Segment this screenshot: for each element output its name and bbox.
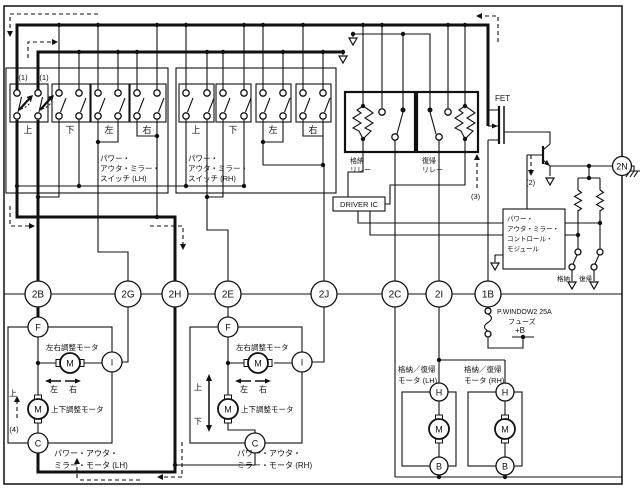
fuse-element <box>485 314 492 331</box>
motor-ud-rh-label: M <box>224 405 232 415</box>
storage-relay-label: 格納 <box>350 156 364 165</box>
ground-arrow-icon <box>590 282 598 289</box>
group-label-down: 下 <box>228 125 237 135</box>
terminal-b-lh-label: B <box>436 462 442 472</box>
lr-motor-name-rh: 左右調整モータ <box>236 342 289 352</box>
ud-motor-name-rh: 上下調整モータ <box>241 404 294 414</box>
transistor-symbol <box>543 144 550 166</box>
connector-2i-label: 2I <box>435 290 443 301</box>
connector-2j-label: 2J <box>319 290 330 301</box>
connector-2h-label: 2H <box>169 290 182 301</box>
ground-arrow-icon <box>546 178 554 185</box>
module-label: コントロール・ <box>507 235 553 243</box>
actuation-arrows <box>19 99 50 110</box>
mirror-motor-rh-name: パワー・アウタ・ <box>237 449 301 458</box>
motor-ud-lh-label: M <box>34 405 42 415</box>
connector-2e-label: 2E <box>222 290 235 301</box>
module-label: パワー・ <box>507 215 533 223</box>
manual-switch-storage-label: 格納 <box>557 274 570 283</box>
storage-relay-box <box>345 92 415 152</box>
left-label: 左 <box>50 384 58 394</box>
terminal-f-rh-label: F <box>225 323 231 333</box>
driver-ic-label: DRIVER IC <box>340 200 379 209</box>
fet-symbol <box>488 106 504 144</box>
transistor-emitter-arrow <box>544 160 550 166</box>
fuse-name: P.WINDOW2 25A <box>497 309 552 316</box>
lr-motor-name-lh: 左右調整モータ <box>46 342 99 352</box>
terminal-h-rh-label: H <box>502 388 509 398</box>
motion-arrows <box>45 374 271 432</box>
group-label-down: 下 <box>65 125 74 135</box>
note-2-label: (2) <box>526 178 536 187</box>
wiring-diagram-page: (1) (1) 上 下 左 右 上 下 左 右 パワー・ アウタ・ミラー・ スイ… <box>0 0 643 488</box>
arrowhead-right-icon <box>29 223 35 229</box>
terminal-f-lh-label: F <box>35 323 41 333</box>
arrowhead-left-icon <box>476 13 482 19</box>
flow-left-elbow <box>28 42 52 58</box>
connector-2c-label: 2C <box>389 290 402 301</box>
group-label-right: 右 <box>142 124 151 135</box>
down-label: 下 <box>194 417 202 426</box>
offpage-arrow-icon <box>349 38 357 45</box>
mirror-motor-rh-name: ミラー・モータ (RH) <box>237 461 312 470</box>
arrowhead-right-icon <box>52 39 58 45</box>
switch-box-rh-name: アウタ・ミラー・ <box>188 164 248 173</box>
fuse-type: フューズ <box>508 317 536 326</box>
group-label-up: 上 <box>191 125 200 135</box>
flow-top-left <box>10 14 98 30</box>
fet-body-arrow <box>492 124 498 129</box>
arrowhead-down-icon <box>528 170 534 176</box>
fold-motor-lh-name: モータ (LH) <box>398 376 438 385</box>
module-label: アウタ・ミラー・ <box>507 224 559 233</box>
arrowhead-left-icon <box>157 474 163 480</box>
mirror-circuit-diagram: (1) (1) 上 下 左 右 上 下 左 右 パワー・ アウタ・ミラー・ スイ… <box>0 0 643 488</box>
arrowhead-down-icon <box>7 31 13 37</box>
switch-box-rh-name: スイッチ (RH) <box>188 174 236 183</box>
terminal-i-rh-label: I <box>301 358 304 368</box>
note-4-label: (4) <box>9 425 19 434</box>
fold-motor-rh-m-label: M <box>501 425 509 435</box>
labels: (1) (1) 上 下 左 右 上 下 左 右 パワー・ アウタ・ミラー・ スイ… <box>9 73 628 472</box>
switch-box-rh-name: パワー・ <box>188 154 218 163</box>
resistor-right <box>597 190 604 211</box>
fet-label: FET <box>495 94 510 103</box>
connector-2n-label: 2N <box>616 162 628 172</box>
group-label-left: 左 <box>268 124 277 135</box>
arrowhead-down-icon <box>180 244 186 250</box>
storage-relay-label: リレー <box>350 167 371 174</box>
switch-box-lh-name: パワー・ <box>100 154 130 163</box>
group-label-right: 右 <box>308 124 317 135</box>
resistor-left <box>575 190 582 211</box>
terminal-i-lh-label: I <box>111 358 114 368</box>
storage-relay-coil <box>353 106 373 139</box>
up-label: 上 <box>194 383 202 392</box>
up-label: 上 <box>9 389 17 398</box>
driver-module-wires <box>358 132 634 281</box>
fuse-terminal: +B <box>515 326 525 335</box>
return-relay-label: リレー <box>422 167 443 174</box>
motor-lr-rh-label: M <box>254 359 262 369</box>
ground-arrow-icon <box>568 282 576 289</box>
manual-switch-return-label: 復帰 <box>579 274 593 283</box>
ground-arrow-icon <box>491 263 499 270</box>
mirror-motor-lh-name: ミラー・モータ (LH) <box>54 461 128 470</box>
offpage-triangles <box>339 38 598 289</box>
right-label: 右 <box>69 384 77 394</box>
fold-motor-rh-name: モータ (RH) <box>464 376 505 385</box>
ud-motor-name-lh: 上下調整モータ <box>51 404 104 414</box>
group-label-left: 左 <box>104 124 113 135</box>
terminal-h-lh-label: H <box>436 388 443 398</box>
right-label: 右 <box>259 384 267 394</box>
note-1-label: (1) <box>39 73 49 82</box>
note-3-label: (3) <box>471 192 481 201</box>
connector-2g-label: 2G <box>121 290 135 301</box>
note-1-label: (1) <box>18 73 28 82</box>
offpage-arrow-icon <box>339 56 347 63</box>
switch-box-lh-name: アウタ・ミラー・ <box>100 164 160 173</box>
group-label-up: 上 <box>23 125 32 135</box>
motor-lr-lh-label: M <box>66 359 74 369</box>
switch-mesh-wires <box>17 120 324 281</box>
switch-column-wires-up <box>59 25 323 90</box>
switch-box-lh-name: スイッチ (LH) <box>100 174 147 183</box>
fold-motor-lh-m-label: M <box>435 425 443 435</box>
fold-motor-rh-name: 格納／復帰 <box>464 364 502 374</box>
arrowhead-up-icon <box>474 154 480 160</box>
left-label: 左 <box>240 384 248 394</box>
mirror-motor-lh-name: パワー・アウタ・ <box>54 449 118 458</box>
flow-mid-down <box>150 226 183 244</box>
fold-motor-lh-name: 格納／復帰 <box>398 364 436 374</box>
terminal-c-lh-label: C <box>35 439 42 449</box>
terminal-c-rh-label: C <box>252 439 259 449</box>
connector-2b-label: 2B <box>32 290 45 301</box>
flow-top-right <box>482 16 498 42</box>
module-label: モジュール <box>507 245 540 253</box>
connector-1b-label: 1B <box>482 290 495 301</box>
return-relay-coil <box>455 106 475 139</box>
terminal-b-rh-label: B <box>502 462 508 472</box>
return-relay-label: 復帰 <box>422 156 436 165</box>
